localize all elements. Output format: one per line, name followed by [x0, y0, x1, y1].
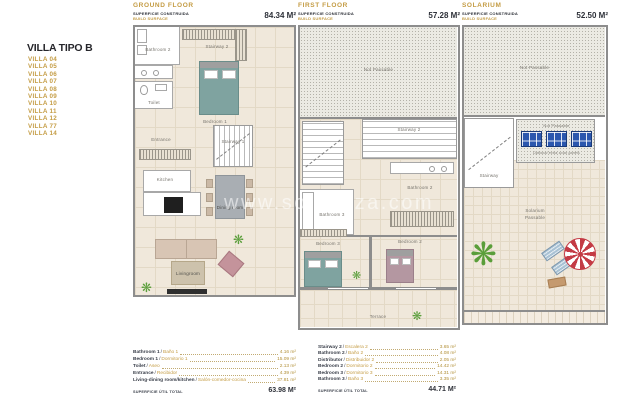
villa-list-item: VILLA 11 — [28, 108, 57, 115]
plan-area-value: 84.34 M² — [264, 11, 296, 20]
solarium-plan: Not Passable Solarium Passable ❋ Stairwa… — [462, 25, 608, 325]
table-icon — [547, 277, 566, 289]
staircase-icon — [213, 125, 253, 167]
villa-list-item: VILLA 05 — [28, 63, 57, 70]
bed-icon — [199, 61, 239, 115]
cooktop-icon — [164, 197, 183, 213]
toilet-room: Toilet — [135, 81, 173, 109]
room-label-bedroom3: Bedroom 3 — [306, 241, 350, 246]
plant-icon: ❋ — [233, 233, 244, 246]
room-label-passable: Passable — [498, 215, 572, 220]
terrace-area: Terrace ❋ — [300, 290, 457, 327]
solar-panel-icon — [571, 131, 592, 147]
bed-icon — [386, 249, 414, 283]
sink-icon — [155, 84, 167, 91]
room-label-entrance: Entrance — [139, 137, 183, 142]
watermark: www.solvanza.com — [224, 192, 434, 215]
plan-title: FIRST FLOOR — [298, 2, 460, 9]
sun-lounger-icon — [541, 241, 565, 262]
villa-list-item: VILLA 06 — [28, 71, 57, 78]
legend-row: Toilet/ Aseo 2.13 m² — [133, 363, 296, 370]
villa-type-title: VILLA TIPO B — [27, 42, 92, 54]
plant-icon: ❋ — [352, 271, 361, 282]
kitchen-island-icon — [143, 192, 201, 216]
toilet-icon — [140, 85, 148, 95]
villa-list-item: VILLA 07 — [28, 78, 57, 85]
legend-row: Bathroom 3/ Baño 3 3.35 m² — [318, 377, 456, 383]
room-label-stairway-mid: Stairway 1 — [213, 139, 253, 144]
roof-not-passable-area: Not Passable — [300, 27, 457, 119]
room-label-not-passable: Not Passable — [464, 65, 605, 70]
bathroom-room: Bathroom 2 — [135, 27, 180, 65]
rug-icon: Livingroom — [171, 261, 205, 285]
first-floor-legend: Stairway 2/ Escalera 2 3.65 m² Bathroom … — [318, 345, 456, 393]
solarium-header: SOLARIUM SUPERFICIE CONSTRUIDA BUILD SUR… — [462, 2, 608, 21]
room-label-not-passable-panels: Not Passable — [517, 123, 596, 128]
ground-floor-header: GROUND FLOOR SUPERFICIE CONSTRUIDA BUILD… — [133, 2, 296, 21]
legend-total: SUPERFICIE ÚTIL TOTAL 63.98 M² — [133, 387, 296, 394]
plan-title: SOLARIUM — [462, 2, 608, 9]
villa-list-item: VILLA 77 — [28, 123, 57, 130]
surface-label-en: BUILD SURFACE — [462, 16, 518, 21]
ground-floor-plan: Bathroom 2 Stairway 2 Bedroom 1 Toilet E… — [133, 25, 296, 297]
staircase-icon — [362, 119, 457, 159]
room-label-bathroom2: Bathroom 2 — [388, 185, 452, 190]
surface-label-en: BUILD SURFACE — [298, 16, 354, 21]
plant-icon: ❋ — [141, 281, 152, 294]
plan-title: GROUND FLOOR — [133, 2, 296, 9]
room-label-stairway-top: Stairway 2 — [187, 44, 247, 49]
vanity-icon — [390, 162, 454, 174]
surface-label-en: BUILD SURFACE — [133, 16, 189, 21]
villa-index-list: VILLA 04 VILLA 05 VILLA 06 VILLA 07 VILL… — [28, 56, 57, 137]
plant-icon: ❋ — [412, 310, 422, 322]
room-label-toilet: Toilet — [135, 100, 173, 105]
solar-panel-icon — [521, 131, 542, 147]
room-label-stairway: Stairway — [466, 173, 512, 178]
villa-list-item: VILLA 04 — [28, 56, 57, 63]
tv-icon — [167, 289, 207, 294]
villa-list-item: VILLA 09 — [28, 93, 57, 100]
washer-icon — [135, 65, 173, 79]
legend-row: Bedroom 1/ Dormitorio 1 15.09 m² — [133, 356, 296, 363]
room-label-living: Livingroom — [172, 271, 204, 276]
room-label-terrace: Terrace — [348, 314, 408, 319]
wall — [369, 237, 372, 287]
solar-panel-zone: Not Passable Optional extra solar panels — [516, 119, 595, 163]
sofa-icon — [155, 239, 217, 259]
legend-row: Bathroom 1/ Baño 1 4.16 m² — [133, 349, 296, 356]
bathtub-icon — [137, 29, 147, 43]
room-label-bathroom: Bathroom 2 — [137, 47, 179, 52]
ground-floor-legend: Bathroom 1/ Baño 1 4.16 m² Bedroom 1/ Do… — [133, 349, 296, 394]
legend-total: SUPERFICIE ÚTIL TOTAL 44.71 M² — [318, 386, 456, 393]
wardrobe-icon — [300, 229, 347, 237]
roof-not-passable-area: Not Passable — [464, 27, 605, 117]
villa-list-item: VILLA 10 — [28, 100, 57, 107]
room-label-solarium: Solarium — [498, 208, 572, 213]
solar-panel-icon — [546, 131, 567, 147]
room-label-bedroom2: Bedroom 2 — [380, 239, 440, 244]
first-floor-plan: Not Passable Stairway 2 Bathroom 2 Bathr… — [298, 25, 460, 330]
palm-plant-icon: ❋ — [470, 238, 497, 270]
room-label-not-passable: Not Passable — [300, 67, 457, 72]
staircase-icon — [302, 121, 344, 185]
planter-strip — [464, 312, 605, 323]
villa-list-item: VILLA 08 — [28, 86, 57, 93]
solar-panels-note: Optional extra solar panels — [517, 151, 596, 155]
legend-row: Living-dining room/kitchen/ Salón-comedo… — [133, 377, 296, 384]
room-label-bedroom1: Bedroom 1 — [185, 119, 245, 124]
first-floor-header: FIRST FLOOR SUPERFICIE CONSTRUIDA BUILD … — [298, 2, 460, 21]
villa-list-item: VILLA 14 — [28, 130, 57, 137]
villa-list-item: VILLA 12 — [28, 115, 57, 122]
armchair-icon — [218, 251, 245, 278]
parasol-icon — [564, 238, 596, 270]
bed-icon — [304, 251, 342, 287]
wardrobe-icon — [182, 29, 237, 40]
floorplan-sheet: VILLA TIPO B VILLA 04 VILLA 05 VILLA 06 … — [0, 0, 630, 402]
room-label-kitchen: Kitchen — [143, 177, 187, 182]
room-label-stairway2: Stairway 2 — [366, 127, 452, 132]
legend-row: Entrance/ Recibidor 4.39 m² — [133, 370, 296, 377]
plan-area-value: 57.28 M² — [428, 11, 460, 20]
plan-area-value: 52.50 M² — [576, 11, 608, 20]
wardrobe-icon — [139, 149, 191, 160]
